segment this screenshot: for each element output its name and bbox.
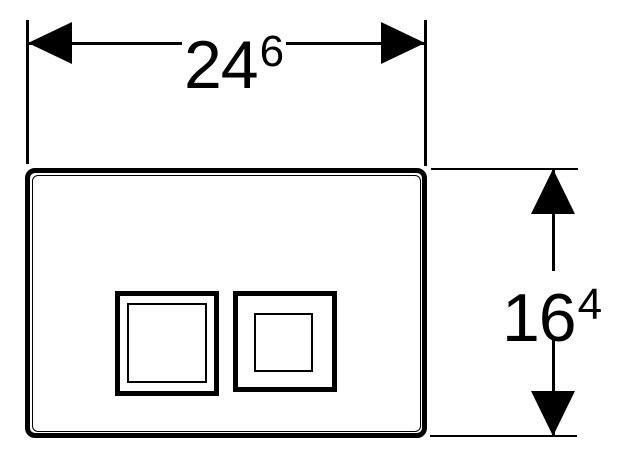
width-value: 24: [184, 27, 258, 103]
plate-inner-outline: [32, 175, 421, 432]
left-flush-button: [115, 291, 219, 396]
right-button-inner-outline: [254, 313, 313, 372]
height-dimension-label: 164: [500, 271, 604, 339]
arrowhead-down-icon: [531, 391, 575, 436]
arrowhead-left-icon: [28, 22, 72, 64]
flush-plate-outline: [25, 168, 427, 438]
arrowhead-right-icon: [381, 22, 425, 64]
height-value: 16: [502, 280, 576, 356]
height-superscript: 4: [578, 280, 602, 329]
width-superscript: 6: [260, 27, 284, 76]
technical-drawing-canvas: 246 164: [0, 0, 620, 458]
arrowhead-up-icon: [531, 169, 575, 214]
right-flush-button: [233, 291, 337, 392]
left-button-inner-outline: [127, 303, 207, 383]
width-dimension-label: 246: [182, 18, 286, 86]
